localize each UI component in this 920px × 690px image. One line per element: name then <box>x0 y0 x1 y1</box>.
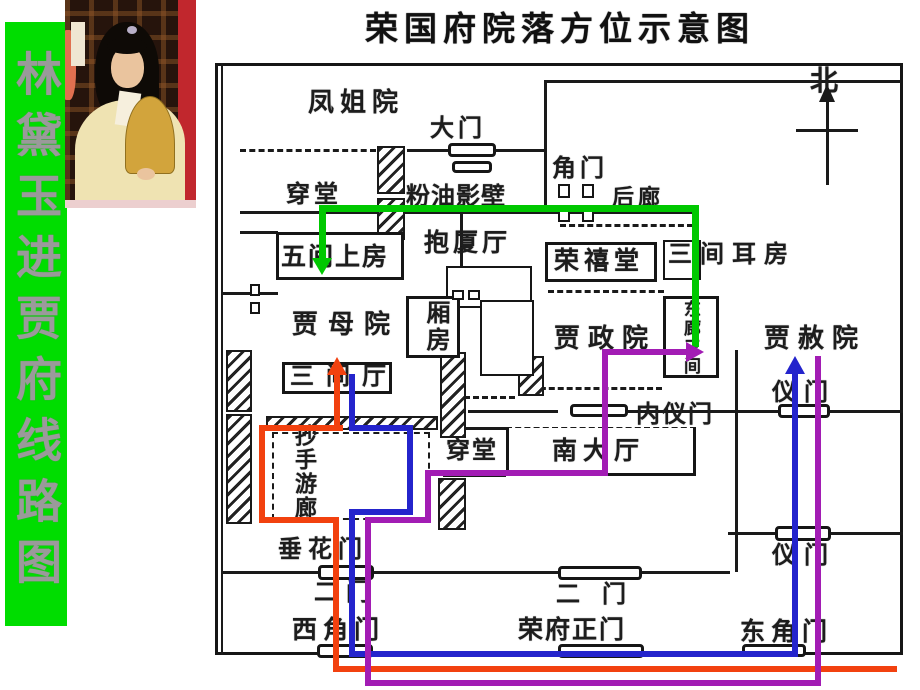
label-baoshating: 抱厦厅 <box>424 230 511 258</box>
route-green-segment <box>319 205 699 212</box>
route-blue-segment <box>792 374 798 657</box>
photo-bottom-strip <box>65 200 196 208</box>
route-purple-segment <box>602 349 686 355</box>
gate-yimen-lower <box>775 526 831 541</box>
label-xiangfang: 厢房 <box>418 300 453 354</box>
label-jiaomen: 角门 <box>552 156 608 182</box>
hatch-mid-column-lower <box>438 478 466 530</box>
route-red-segment <box>259 425 343 431</box>
gate-ermen-center <box>558 566 642 580</box>
route-red-arrowhead-up <box>327 357 347 375</box>
route-red-segment <box>333 520 339 672</box>
route-purple-segment <box>365 517 371 686</box>
wall-yimen-upper-east <box>830 410 903 413</box>
label-sanjianerfang: 三间耳房 <box>668 242 796 268</box>
route-green-arrowhead-down <box>312 258 332 275</box>
label-donglangsanjian: 东廊三间 <box>678 300 703 376</box>
gate-damen-inner <box>452 161 492 173</box>
hatch-west-wall-upper <box>226 350 252 412</box>
label-wujianshangfang: 五间上房 <box>281 244 389 272</box>
route-green-segment <box>319 205 326 260</box>
label-jiasheyuan: 贾赦院 <box>764 324 866 353</box>
route-purple-segment <box>602 349 608 476</box>
wall-south-court-3 <box>641 571 730 574</box>
route-purple-segment <box>425 470 431 523</box>
label-damen: 大门 <box>430 116 486 142</box>
map-inner-wall-left <box>221 63 223 655</box>
label-yimen-lower: 仪门 <box>772 543 836 569</box>
lin-daiyu-photo <box>65 0 196 208</box>
wall-jiamu-north-stub <box>240 231 278 234</box>
route-red-segment <box>334 374 340 431</box>
gate-wujianshangfang-post-2 <box>250 302 260 314</box>
label-fengjieyuan: 凤姐院 <box>308 88 404 117</box>
photo-hair-fringe <box>107 38 147 54</box>
route-blue-segment <box>407 425 413 515</box>
gate-jiamu-east-post-1 <box>452 290 464 300</box>
wall-south-court-1 <box>222 571 318 574</box>
gate-neiyimen <box>570 404 628 417</box>
route-red-segment <box>259 517 339 523</box>
banner-text: 林黛玉进贾府线路图 <box>5 50 67 599</box>
wall-vert-fengjie-east <box>544 80 547 212</box>
label-neiyimen: 内仪门 <box>636 402 714 428</box>
route-green-segment <box>692 205 699 347</box>
route-purple-segment <box>365 680 821 686</box>
gate-jiaomen-post-2 <box>582 184 594 198</box>
route-blue-arrowhead-up <box>785 356 805 374</box>
compass-arrow-head <box>819 84 835 102</box>
photo-hair-ornament <box>127 26 137 34</box>
route-purple-segment <box>425 470 608 476</box>
route-purple-arrowhead-right <box>686 342 704 362</box>
slide-title: 荣国府院落方位示意图 <box>320 2 800 50</box>
wall-top-inner <box>545 80 901 83</box>
wall-south-court-2 <box>374 571 558 574</box>
label-rongfuzhengmen: 荣府正门 <box>518 617 626 645</box>
label-chuantang-south: 穿堂 <box>446 438 498 464</box>
gate-wujianshangfang-post-1 <box>250 284 260 296</box>
compass-arrow-shaft <box>826 100 829 185</box>
slide: 林黛玉进贾府线路图 荣国府院落方位示意图 北 <box>0 0 920 690</box>
label-nandating: 南大厅 <box>552 438 645 466</box>
compass-crossbar <box>796 129 858 132</box>
photo-hand <box>137 168 155 180</box>
hatch-west-wall-lower <box>226 414 252 524</box>
gate-damen-outer <box>448 143 496 157</box>
route-map-banner: 林黛玉进贾府线路图 <box>5 22 67 626</box>
wall-jiashe-court-west <box>735 350 738 572</box>
label-yimen-upper: 仪门 <box>772 380 836 406</box>
wall-dashed-gatewall-west <box>240 149 376 152</box>
hatch-mid-column <box>440 352 466 438</box>
room-box-unlabeled <box>480 300 534 376</box>
label-rongxitang: 荣禧堂 <box>554 248 644 276</box>
route-blue-segment <box>349 425 413 431</box>
wall-yimen-lower-west <box>728 532 775 535</box>
route-red-segment <box>259 428 265 523</box>
route-blue-segment <box>349 509 413 515</box>
route-blue-segment <box>349 651 798 657</box>
wall-gatewall-mid <box>407 149 450 152</box>
route-purple-segment <box>815 356 821 686</box>
label-jiamuyuan: 贾母院 <box>292 310 400 339</box>
route-blue-segment <box>349 374 355 431</box>
wall-neiyimen-west <box>468 410 558 413</box>
label-ermen-center: 二门 <box>556 582 648 608</box>
dashed-houlang-corridor <box>560 224 693 227</box>
wall-gatewall-east <box>494 149 545 152</box>
photo-label-card <box>71 22 85 66</box>
route-blue-segment <box>349 509 355 657</box>
route-purple-segment <box>365 517 431 523</box>
label-chaoshouyoulang: 抄手游廊 <box>288 424 320 520</box>
gate-jiamu-east-post-2 <box>468 290 480 300</box>
dashed-jiazheng-north <box>548 290 664 293</box>
route-red-segment <box>336 666 897 672</box>
wall-yimen-lower-east <box>830 532 903 535</box>
gate-jiaomen-post-1 <box>558 184 570 198</box>
hatch-screen-north <box>377 146 405 194</box>
